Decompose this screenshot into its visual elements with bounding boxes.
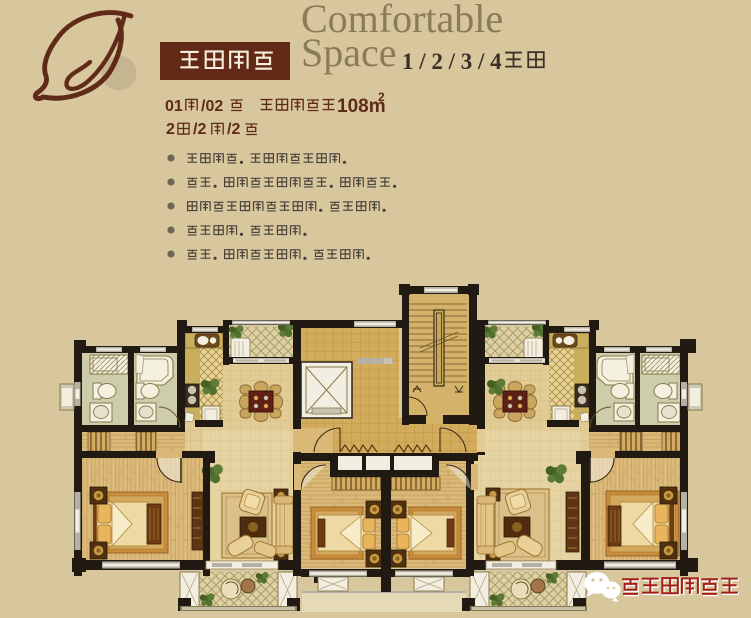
- svg-text:/02: /02: [201, 98, 223, 115]
- svg-text:/2: /2: [193, 121, 206, 138]
- svg-text:2: 2: [166, 121, 175, 138]
- svg-text:2: 2: [378, 90, 385, 104]
- svg-text:01: 01: [165, 98, 183, 115]
- svg-text:/2: /2: [227, 121, 240, 138]
- svg-text:1 / 2 / 3 / 4: 1 / 2 / 3 / 4: [402, 49, 502, 74]
- svg-text:Space: Space: [301, 30, 397, 75]
